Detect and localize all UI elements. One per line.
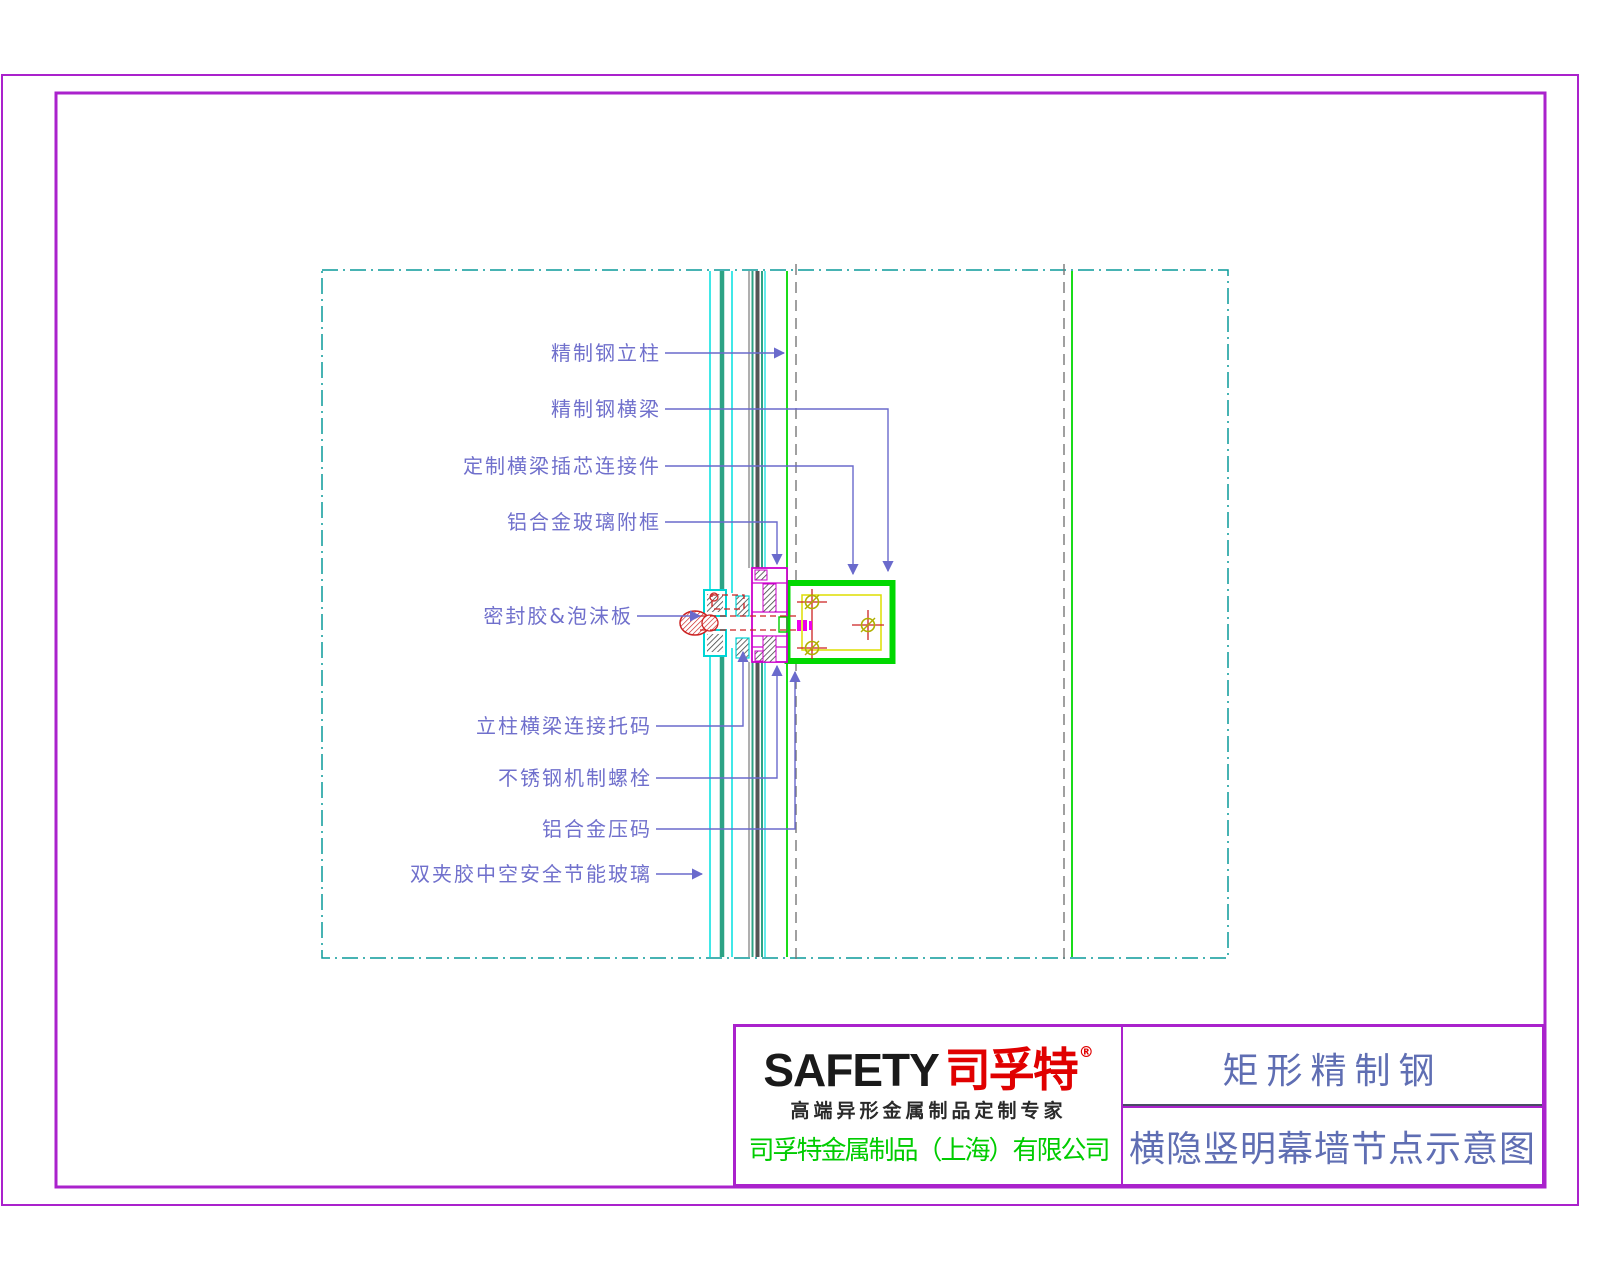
label-insert-connector: 定制横梁插芯连接件 bbox=[463, 454, 661, 478]
label-glass-subframe: 铝合金玻璃附框 bbox=[507, 510, 661, 534]
leader-pressure-block bbox=[656, 672, 795, 829]
drawing-title: 横隐竖明幕墙节点示意图 bbox=[1129, 1120, 1536, 1172]
brand-tagline: 高端异形金属制品定制专家 bbox=[791, 1096, 1067, 1123]
registered-trademark-icon: ® bbox=[1079, 1045, 1094, 1060]
bracket-top bbox=[736, 596, 749, 616]
label-bolt: 不锈钢机制螺栓 bbox=[498, 766, 652, 790]
drawing-title-cell: 横隐竖明幕墙节点示意图 bbox=[1123, 1108, 1542, 1184]
mullion-joint-detail bbox=[680, 568, 796, 662]
label-sealant-foam: 密封胶&泡沫板 bbox=[483, 604, 633, 628]
callout-labels: 精制钢立柱 精制钢横梁 定制横梁插芯连接件 铝合金玻璃附框 密封胶&泡沫板 立柱… bbox=[410, 341, 661, 886]
title-cells: 矩形精制钢 横隐竖明幕墙节点示意图 bbox=[1121, 1027, 1542, 1184]
pressure-plate-bottom bbox=[763, 636, 776, 662]
company-logo-cell: SAFETY 司孚特 ® 高端异形金属制品定制专家 司孚特金属制品（上海）有限公… bbox=[736, 1027, 1121, 1184]
leader-bracket bbox=[656, 652, 743, 726]
project-name: 矩形精制钢 bbox=[1223, 1042, 1443, 1094]
label-mullion: 精制钢立柱 bbox=[551, 341, 661, 365]
label-glass: 双夹胶中空安全节能玻璃 bbox=[410, 862, 652, 886]
brand-name-en: SAFETY bbox=[763, 1047, 938, 1093]
sealant-bead bbox=[702, 615, 718, 631]
cell-divider bbox=[1123, 1106, 1542, 1108]
pressure-plate-top bbox=[763, 584, 776, 612]
label-pressure-block: 铝合金压码 bbox=[542, 817, 652, 841]
insert-bolt-heads bbox=[797, 620, 812, 631]
brand-name-cn: 司孚特 bbox=[945, 1047, 1077, 1093]
brand-logo: SAFETY 司孚特 ® bbox=[763, 1047, 1093, 1093]
title-block: SAFETY 司孚特 ® 高端异形金属制品定制专家 司孚特金属制品（上海）有限公… bbox=[733, 1024, 1545, 1187]
drawing-sheet: 精制钢立柱 精制钢横梁 定制横梁插芯连接件 铝合金玻璃附框 密封胶&泡沫板 立柱… bbox=[0, 0, 1600, 1280]
label-transom: 精制钢横梁 bbox=[551, 397, 661, 421]
transom-box bbox=[788, 583, 893, 661]
project-name-cell: 矩形精制钢 bbox=[1123, 1027, 1542, 1108]
company-name: 司孚特金属制品（上海）有限公司 bbox=[749, 1130, 1109, 1167]
label-bracket: 立柱横梁连接托码 bbox=[476, 714, 652, 738]
gasket-top bbox=[755, 570, 767, 580]
